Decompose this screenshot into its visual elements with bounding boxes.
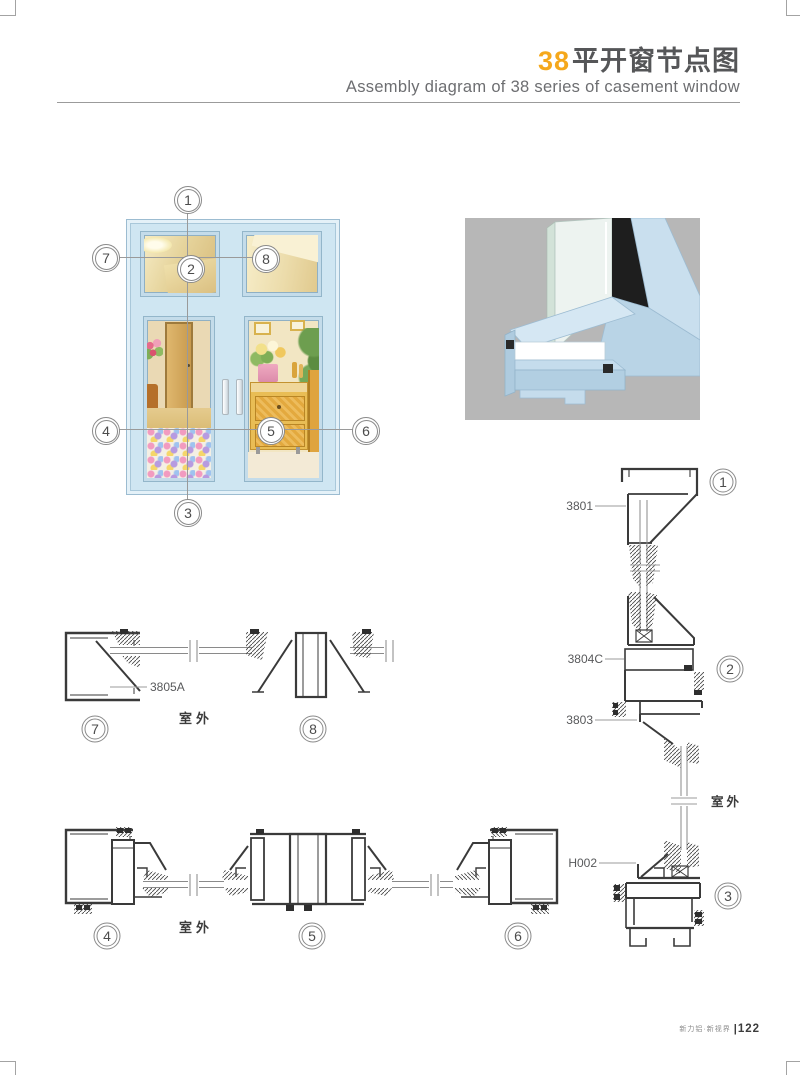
crop-mark-bottom-right [786, 1061, 800, 1075]
bottle-2 [299, 364, 303, 378]
ceiling-lamp [144, 237, 172, 253]
crop-mark-top-right [786, 0, 800, 16]
carpet [248, 452, 319, 478]
flower-bouquet-left [147, 336, 163, 360]
center-mullion-profile [230, 834, 386, 904]
section-circle-4: 4 [94, 923, 120, 949]
callout-3: 3 [174, 499, 202, 527]
svg-text:6: 6 [514, 928, 522, 944]
callout-7: 7 [92, 244, 120, 272]
callout-2: 2 [177, 255, 205, 283]
lower-sash-top-profile [640, 701, 700, 744]
label-3805a: 3805A [150, 680, 185, 694]
svg-text:8: 8 [309, 721, 317, 737]
label-3803: 3803 [566, 713, 593, 727]
left-frame-sash-profile [66, 827, 168, 914]
window-handle-left[interactable] [222, 379, 229, 415]
series-number: 38 [538, 46, 570, 76]
footer-separator: | [734, 1023, 737, 1035]
sill-frame-profile [626, 883, 700, 946]
dresser-foot-1 [256, 447, 260, 454]
break-mark-lower [671, 798, 697, 804]
callout-8: 8 [252, 245, 280, 273]
label-3804c: 3804C [568, 652, 604, 666]
dresser-foot-2 [296, 447, 300, 454]
head-frame-profile [622, 469, 697, 545]
page-title: 38平开窗节点图 [0, 46, 740, 76]
window-handle-right[interactable] [236, 379, 243, 415]
glass-lines-upper [640, 500, 647, 632]
crop-mark-bottom-left [0, 1061, 16, 1075]
page-number: 122 [738, 1023, 760, 1035]
flower-vase [258, 364, 278, 382]
page-subtitle: Assembly diagram of 38 series of casemen… [0, 78, 740, 97]
section-circle-8: 8 [300, 716, 326, 742]
callout-line-4-6 [117, 429, 353, 430]
svg-text:5: 5 [308, 928, 316, 944]
svg-text:4: 4 [103, 928, 111, 944]
vertical-section-1-2-3: 3801 3804C 3803 H002 室外 1 2 3 [556, 458, 766, 958]
floral-bedspread [147, 428, 211, 478]
casement-glass-right [248, 320, 319, 478]
callout-4: 4 [92, 417, 120, 445]
callout-5: 5 [257, 417, 285, 445]
outdoor-label-vertical: 室外 [711, 794, 742, 809]
casement-glass-left [147, 320, 211, 478]
svg-text:2: 2 [726, 661, 734, 677]
horizontal-section-7-8: 3805A 室外 7 8 [55, 618, 400, 748]
svg-text:1: 1 [719, 474, 727, 490]
svg-text:7: 7 [91, 721, 99, 737]
horizontal-section-4-5-6: 室外 4 5 6 [55, 820, 565, 955]
catalog-page: 38平开窗节点图 Assembly diagram of 38 series o… [0, 0, 800, 1075]
label-3801: 3801 [566, 499, 593, 513]
section-circle-7: 7 [82, 716, 108, 742]
section-circle-1: 1 [710, 469, 736, 495]
casement-sash-left [143, 316, 215, 482]
tall-cabinet [308, 370, 319, 452]
outdoor-label-bottom: 室外 [179, 920, 213, 935]
right-frame-sash-profile [455, 827, 557, 914]
header-divider [57, 102, 740, 103]
drawer-knob-1 [277, 405, 281, 409]
label-h002: H002 [568, 856, 597, 870]
crop-mark-top-left [0, 0, 16, 16]
section-circle-6: 6 [505, 923, 531, 949]
picture-frame-1 [254, 322, 271, 335]
section-circle-5: 5 [299, 923, 325, 949]
page-header: 38平开窗节点图 Assembly diagram of 38 series o… [0, 46, 740, 97]
callout-6: 6 [352, 417, 380, 445]
callout-1: 1 [174, 186, 202, 214]
footer-slogan: 新力铝·新视界 [679, 1024, 730, 1034]
casement-sash-right [244, 316, 323, 482]
bottle-1 [292, 362, 297, 378]
profile-3d-render [465, 218, 700, 420]
casement-window-illustration [126, 219, 340, 495]
mullion-profile [252, 633, 370, 697]
section-circle-2: 2 [717, 656, 743, 682]
svg-text:3: 3 [724, 888, 732, 904]
section-circle-3: 3 [715, 883, 741, 909]
dresser-top-rail [251, 383, 307, 392]
title-chinese: 平开窗节点图 [572, 46, 740, 76]
interior-door [165, 322, 193, 414]
outdoor-label-mid: 室外 [179, 711, 213, 726]
page-footer: 新力铝·新视界 | 122 [679, 1023, 760, 1035]
leader-lines [595, 506, 637, 863]
